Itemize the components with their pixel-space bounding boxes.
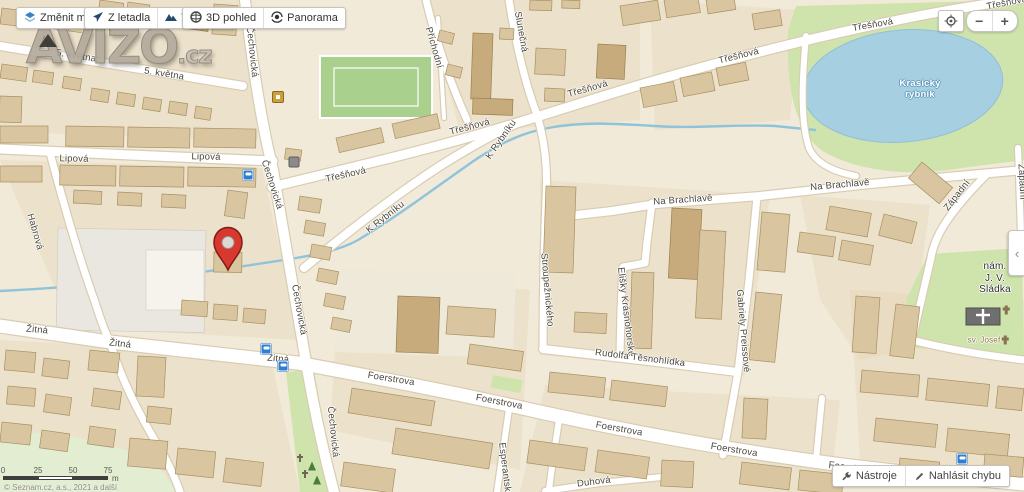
zoom-in-button[interactable]: + <box>993 11 1018 31</box>
scale-bar-unit: m <box>112 474 119 483</box>
scale-tick: 25 <box>34 466 43 475</box>
toolbar-button-panorama-eye[interactable]: Panorama <box>263 8 345 28</box>
report-pencil-icon <box>914 471 925 482</box>
bus-stop-icon[interactable] <box>278 361 289 372</box>
locate-button[interactable] <box>938 10 964 32</box>
copyright-text: © Seznam.cz, a.s., 2021 a další <box>4 483 117 492</box>
tools-button[interactable]: Nástroje <box>833 466 905 486</box>
zoom-out-button[interactable]: − <box>967 11 993 31</box>
bus-stop-icon[interactable] <box>243 170 254 181</box>
zoom-control: − + <box>966 10 1018 32</box>
public-building-icon <box>289 157 300 168</box>
scale-bar: 0255075 m <box>3 466 143 482</box>
scale-tick: 50 <box>69 466 78 475</box>
tools-button-label: Nástroje <box>856 470 897 482</box>
sports-field <box>320 56 432 118</box>
side-panel-toggle[interactable]: ‹ <box>1008 230 1024 276</box>
scale-bar-segments <box>3 476 108 480</box>
grave-cross-icon <box>304 470 306 478</box>
tree-icon <box>308 462 316 471</box>
footer-toolbar: Nástroje Nahlásit chybu <box>832 465 1010 487</box>
toolbar-button-aerial-plane[interactable]: Z letadla <box>85 8 157 28</box>
church-cross-icon <box>1005 306 1008 315</box>
church-building <box>966 308 1000 325</box>
panorama-eye-icon <box>271 11 283 26</box>
report-error-button[interactable]: Nahlásit chybu <box>905 466 1009 486</box>
toolbar-button-globe-3d[interactable]: 3D pohled <box>183 8 263 28</box>
school-icon <box>272 91 284 103</box>
tools-wrench-icon <box>841 471 852 482</box>
scale-tick: 0 <box>1 466 5 475</box>
aerial-plane-icon <box>92 11 104 26</box>
locate-target-icon <box>944 14 958 28</box>
toolbar-group-3d: 3D pohledPanorama <box>182 7 346 29</box>
grave-cross-icon <box>299 454 301 462</box>
church-cross-icon <box>1004 336 1007 345</box>
tourist-mountains-icon <box>165 11 177 26</box>
avizo-logo-triangle-icon <box>39 34 57 47</box>
bus-stop-icon[interactable] <box>957 454 968 465</box>
bus-stop-icon[interactable] <box>261 344 272 355</box>
map-switch-icon <box>24 11 36 26</box>
basemap-graphics <box>0 0 1024 492</box>
report-error-button-label: Nahlásit chybu <box>929 470 1001 482</box>
map-canvas[interactable]: 5. května5. květnaLipováLipováHabrováČec… <box>0 0 1024 492</box>
globe-3d-icon <box>190 11 202 26</box>
tree-icon <box>313 476 321 485</box>
